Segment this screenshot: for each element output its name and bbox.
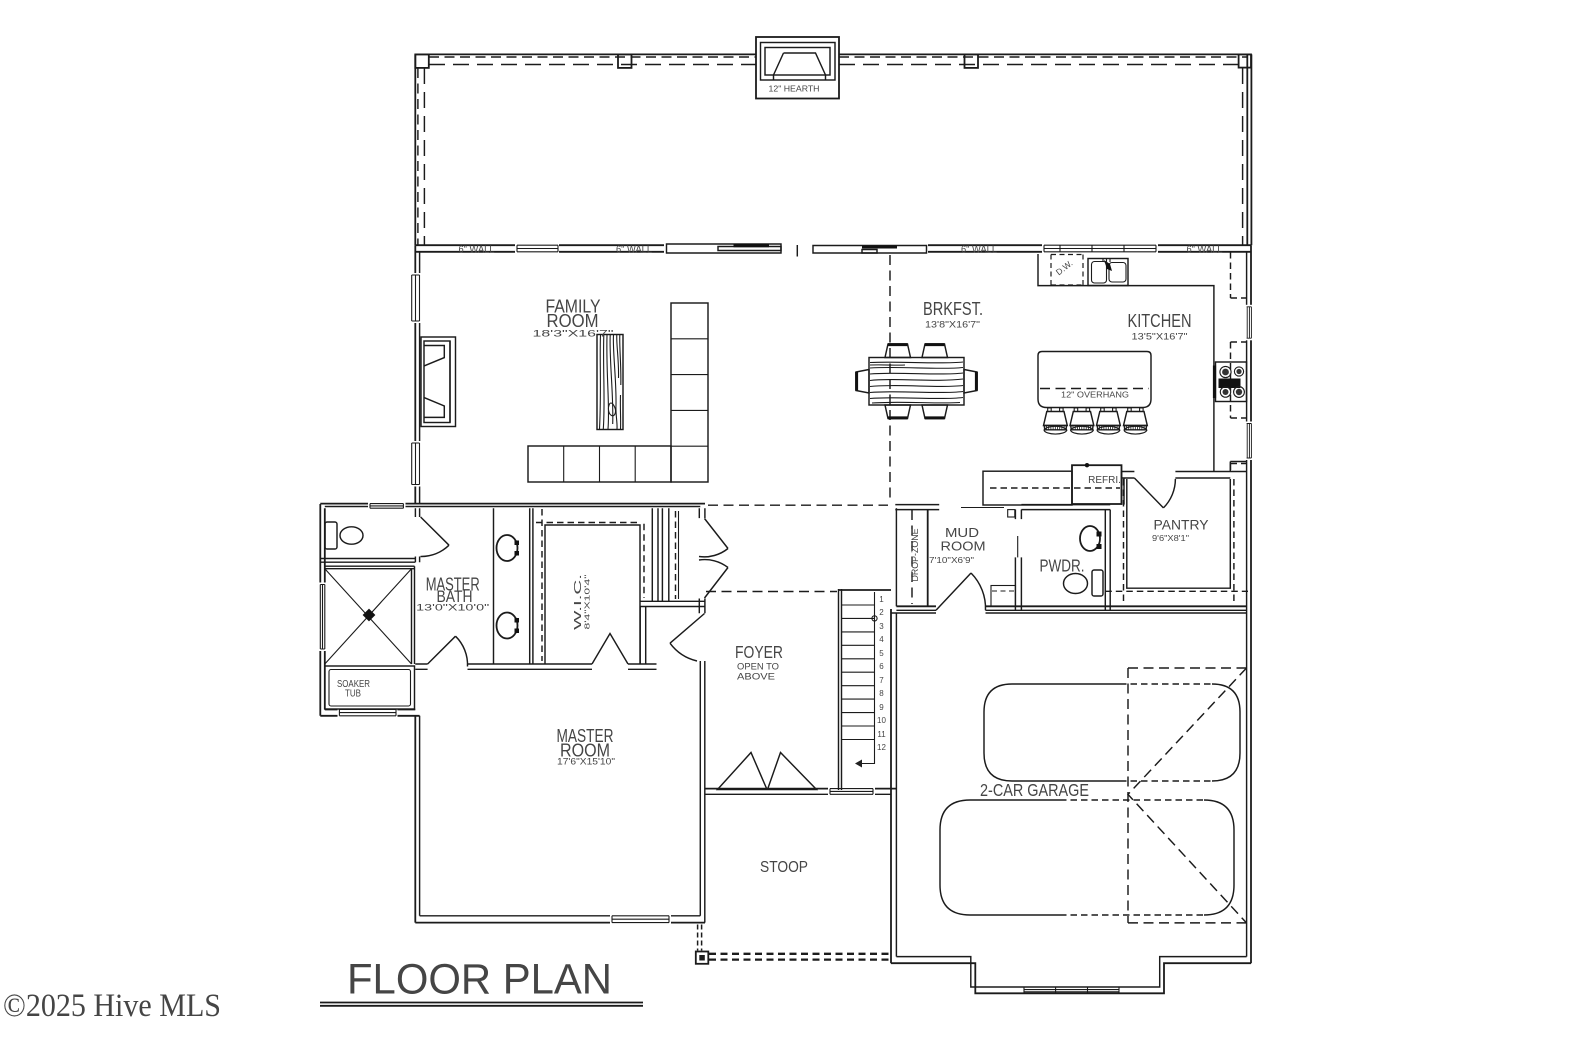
svg-text:12: 12 <box>877 743 886 752</box>
svg-text:6" WALL: 6" WALL <box>961 244 997 256</box>
svg-text:13'0"X10'0": 13'0"X10'0" <box>416 603 489 614</box>
svg-text:18'3"X16'7": 18'3"X16'7" <box>533 329 614 340</box>
svg-text:BRKFST.: BRKFST. <box>923 298 983 319</box>
svg-text:6" WALL: 6" WALL <box>459 244 495 256</box>
svg-text:13'5"X16'7": 13'5"X16'7" <box>1132 332 1188 343</box>
svg-text:REFRI.: REFRI. <box>1088 475 1121 486</box>
svg-text:PANTRY: PANTRY <box>1154 518 1209 533</box>
svg-text:5: 5 <box>879 649 884 658</box>
svg-text:STOOP: STOOP <box>760 859 808 876</box>
svg-text:12" HEARTH: 12" HEARTH <box>769 84 820 94</box>
svg-text:1: 1 <box>879 595 884 604</box>
svg-text:PWDR.: PWDR. <box>1040 556 1085 576</box>
svg-text:7: 7 <box>879 676 884 685</box>
svg-text:8: 8 <box>879 689 884 698</box>
svg-text:FOYER: FOYER <box>735 642 783 662</box>
svg-text:4: 4 <box>879 635 884 644</box>
svg-text:3: 3 <box>879 622 884 631</box>
svg-text:ROOM: ROOM <box>941 539 986 554</box>
svg-text:10: 10 <box>877 716 886 725</box>
svg-text:6" WALL: 6" WALL <box>1187 244 1223 256</box>
svg-text:13'8"X16'7": 13'8"X16'7" <box>925 320 980 331</box>
svg-text:2: 2 <box>879 608 884 617</box>
svg-text:ABOVE: ABOVE <box>737 672 775 683</box>
svg-text:7'10"X6'9": 7'10"X6'9" <box>929 555 974 565</box>
svg-text:8'4"X10'4": 8'4"X10'4" <box>583 574 592 630</box>
svg-text:9: 9 <box>879 703 884 712</box>
svg-text:TUB: TUB <box>345 689 361 700</box>
svg-text:6: 6 <box>879 662 884 671</box>
svg-text:DROP-ZONE: DROP-ZONE <box>910 529 921 582</box>
svg-text:FLOOR PLAN: FLOOR PLAN <box>347 957 612 1004</box>
svg-text:12" OVERHANG: 12" OVERHANG <box>1061 390 1129 400</box>
svg-text:9'6"X8'1": 9'6"X8'1" <box>1152 533 1189 543</box>
svg-text:17'6"X15'10": 17'6"X15'10" <box>557 757 615 768</box>
svg-text:11: 11 <box>877 730 886 739</box>
svg-text:2-CAR GARAGE: 2-CAR GARAGE <box>980 780 1089 800</box>
svg-text:6" WALL: 6" WALL <box>616 244 652 256</box>
svg-text:©2025 Hive MLS: ©2025 Hive MLS <box>3 988 221 1024</box>
svg-text:KITCHEN: KITCHEN <box>1128 310 1192 331</box>
